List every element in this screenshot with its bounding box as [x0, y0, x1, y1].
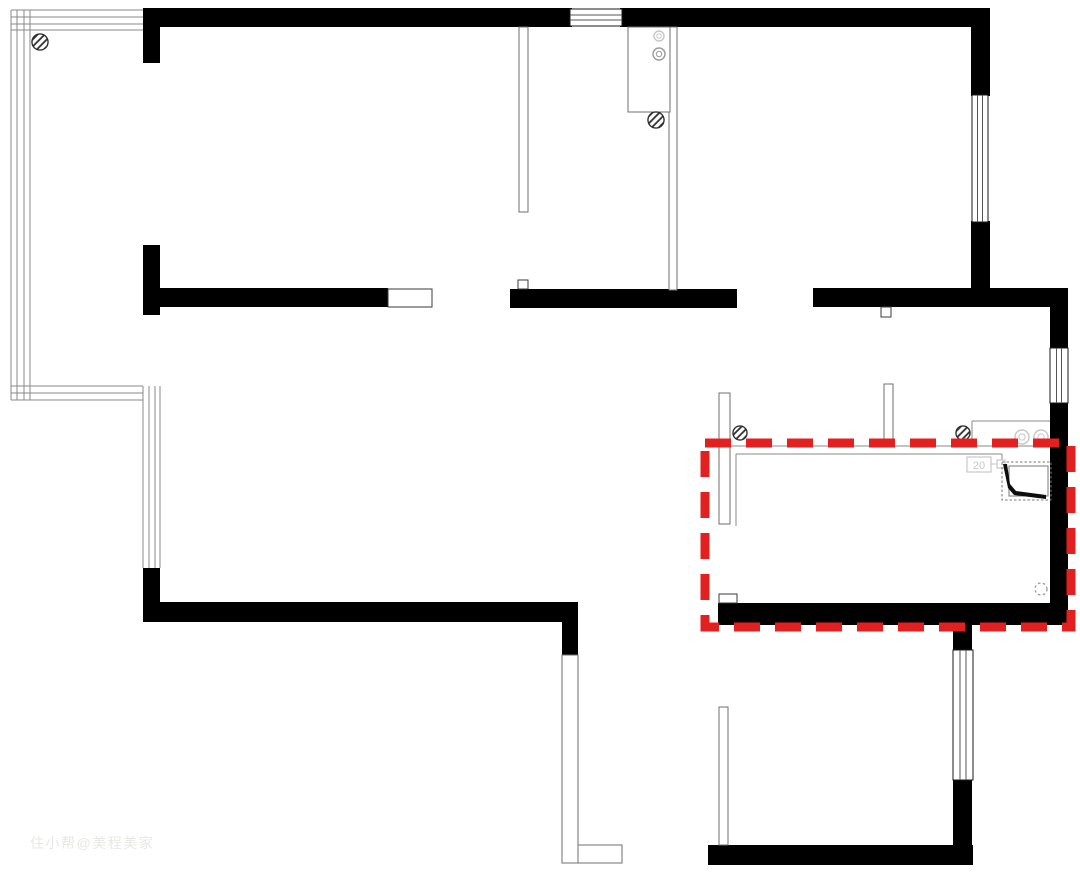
- floor-plan: 20: [0, 0, 1080, 875]
- watermark: 住小帮@美程美家: [30, 833, 154, 853]
- wall: [143, 245, 160, 315]
- wall: [1050, 307, 1068, 349]
- burner-icon: [653, 48, 665, 60]
- wall: [562, 602, 578, 655]
- wall: [160, 288, 388, 307]
- wall: [708, 845, 973, 865]
- door-frame: [518, 280, 528, 289]
- partition: [884, 384, 893, 446]
- wall: [718, 603, 1068, 625]
- wall: [971, 8, 990, 96]
- pipe-column-icon: [733, 426, 747, 440]
- wall: [813, 288, 1068, 307]
- window: [972, 95, 988, 222]
- wall: [160, 602, 578, 622]
- washer-label: 20: [973, 460, 985, 472]
- floor-plan-page: 20 住小帮@美程美家: [0, 0, 1080, 875]
- wall: [1050, 402, 1068, 625]
- pipe-column-icon: [956, 426, 970, 440]
- cased-opening: [388, 289, 432, 307]
- partition: [719, 393, 730, 524]
- partition: [519, 27, 528, 212]
- pipe-column-icon: [648, 112, 664, 128]
- kitchen-counter: [628, 27, 670, 112]
- window: [953, 650, 973, 780]
- wall: [143, 8, 160, 63]
- balcony-railing: [578, 845, 622, 863]
- floor-drain-icon: [1035, 583, 1047, 595]
- door-frame: [719, 594, 737, 603]
- wall: [510, 289, 737, 308]
- window: [1050, 348, 1068, 403]
- burner-icon: [654, 31, 664, 41]
- wall: [143, 568, 160, 622]
- door-frame: [881, 307, 891, 317]
- balcony-railing: [562, 655, 578, 863]
- pipe-column-icon: [32, 34, 48, 50]
- window: [570, 9, 622, 26]
- wall: [143, 8, 572, 27]
- wall: [620, 8, 990, 27]
- partition: [719, 707, 728, 845]
